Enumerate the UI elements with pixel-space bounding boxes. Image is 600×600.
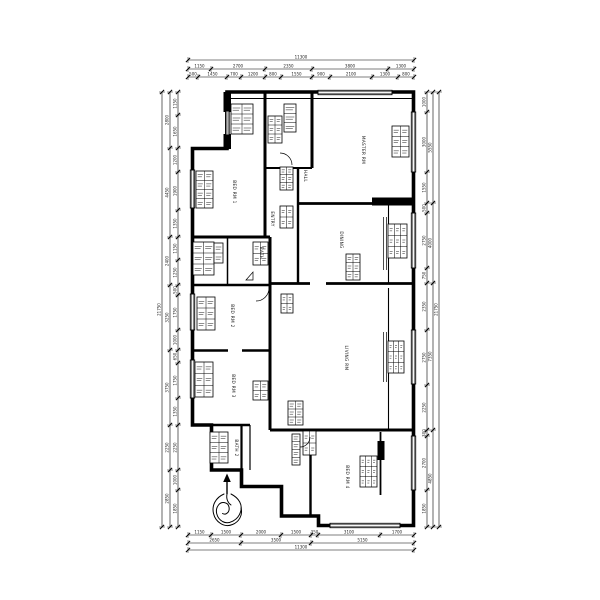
dim-label: 650	[173, 352, 178, 360]
door-swing	[280, 153, 292, 165]
fixture-block	[303, 431, 316, 455]
wall-column	[378, 441, 385, 460]
dim-label: 2700	[233, 64, 244, 69]
dim-tier-horizontal: 115015002000150035031001700	[186, 530, 416, 538]
window-frame	[411, 436, 415, 490]
dim-label: 2350	[422, 301, 427, 312]
dim-label: 1350	[173, 218, 178, 229]
entrance-scribble	[216, 494, 241, 523]
fixture-block	[280, 206, 293, 228]
dim-label: 2850	[165, 493, 170, 504]
fixture-outline	[284, 104, 296, 132]
wall-column	[372, 198, 414, 206]
window-symbol	[411, 112, 415, 172]
dim-label: 300	[422, 429, 427, 437]
fixture-block	[214, 243, 223, 263]
dim-label: 4450	[165, 187, 170, 198]
fixture-outline	[360, 456, 377, 487]
dim-label: 800	[402, 72, 410, 77]
fixture-block	[360, 456, 377, 487]
dim-label: 2800	[165, 114, 170, 125]
room-label: BED RM 1	[232, 180, 237, 203]
door-swing	[256, 288, 269, 301]
dim-label: 1750	[173, 307, 178, 318]
room-label: BATH	[259, 247, 264, 260]
window-symbol	[226, 111, 230, 135]
dim-label: 500	[173, 286, 178, 294]
dim-label: 11300	[295, 545, 308, 550]
floorplan-page: 1130011502700235038001300500145070012008…	[0, 0, 600, 600]
window-symbol	[190, 360, 194, 398]
fixture-block	[253, 381, 268, 400]
room-label: DINING	[339, 231, 344, 248]
dim-label: 750	[422, 271, 427, 279]
dim-tier-vertical: 1150165012001900135011501250500175010006…	[173, 90, 181, 529]
dim-label: 1750	[173, 375, 178, 386]
window-frame	[318, 90, 392, 94]
dim-label: 2650	[209, 538, 220, 543]
dim-label: 1350	[173, 406, 178, 417]
dim-label: 2250	[422, 402, 427, 413]
window-frame	[330, 523, 400, 527]
dim-label: 1900	[173, 185, 178, 196]
dim-label: 3500	[271, 538, 282, 543]
fixture-block	[268, 116, 282, 143]
window-symbol	[318, 90, 392, 94]
dim-label: 1150	[194, 64, 205, 69]
window-frame	[411, 213, 415, 268]
dim-label: 21750	[157, 303, 162, 316]
fixture-block	[197, 297, 215, 330]
fixture-block	[292, 434, 300, 465]
window-symbol	[411, 213, 415, 268]
window-frame	[190, 360, 194, 398]
dim-label: 1150	[194, 530, 205, 535]
window-frame	[190, 170, 194, 208]
dim-label: 1250	[173, 267, 178, 278]
dim-label: 1850	[422, 503, 427, 514]
fixture-block	[195, 362, 213, 397]
window-frame	[190, 294, 194, 330]
dim-label: 3000	[422, 136, 427, 147]
dim-label: 2250	[165, 442, 170, 453]
dim-label: 1000	[422, 96, 427, 107]
wall	[384, 332, 387, 382]
door-swing	[246, 272, 253, 280]
dim-label: 1550	[291, 72, 302, 77]
dim-label: 2000	[256, 530, 267, 535]
dim-label: 21750	[434, 303, 439, 316]
dim-label: 1550	[422, 182, 427, 193]
dim-tier-horizontal: 11300	[186, 55, 416, 63]
dim-label: 2400	[165, 255, 170, 266]
dim-label: 1300	[396, 64, 407, 69]
dim-label: 1300	[380, 72, 391, 77]
dim-label: 1200	[248, 72, 259, 77]
fixture-block	[284, 104, 296, 132]
dim-label: 900	[317, 72, 325, 77]
wall-column	[224, 92, 232, 112]
dim-label: 1700	[392, 530, 403, 535]
dim-label: 1150	[173, 98, 178, 109]
dim-label: 2100	[346, 72, 357, 77]
window-frame	[411, 112, 415, 172]
fixture-block	[210, 432, 228, 463]
dim-label: 500	[189, 72, 197, 77]
dim-label: 4000	[428, 237, 433, 248]
room-label: BED RM 4	[345, 465, 350, 488]
dim-label: 1150	[173, 243, 178, 254]
fixture-block	[288, 401, 303, 425]
entrance-arrow-head	[223, 474, 231, 483]
room-label: ENTRY	[270, 211, 275, 226]
window-frame	[226, 111, 230, 135]
dim-label: 3750	[165, 382, 170, 393]
dim-tier-horizontal: 11300	[186, 545, 416, 553]
window-frame	[411, 330, 415, 384]
dim-label: 1000	[173, 474, 178, 485]
dim-label: 2750	[422, 235, 427, 246]
dim-label: 1200	[173, 154, 178, 165]
dim-label: 1850	[173, 503, 178, 514]
entrance-arrow-icon	[213, 474, 241, 526]
fixture-block	[196, 171, 213, 208]
fixture-block	[231, 104, 253, 134]
dim-label: 2250	[173, 442, 178, 453]
wall	[384, 217, 387, 270]
dim-label: 1500	[221, 530, 232, 535]
dim-label: 2350	[283, 64, 294, 69]
dim-tier-vertical: 21750	[157, 90, 165, 529]
dim-label: 700	[230, 72, 238, 77]
room-label: MASTER RM	[361, 136, 366, 164]
dim-label: 7350	[428, 351, 433, 362]
room-label: BATH 2	[234, 439, 239, 456]
floorplan-svg: 1130011502700235038001300500145070012008…	[0, 0, 600, 600]
dim-label: 1500	[291, 530, 302, 535]
fixture-block	[346, 254, 360, 280]
room-label: BED RM 2	[230, 304, 235, 327]
dim-label: 3800	[345, 64, 356, 69]
wall-column	[224, 134, 232, 149]
fixture-block	[388, 341, 404, 373]
dim-label: 2700	[422, 457, 427, 468]
fixture-outline	[388, 341, 404, 373]
fixture-outline	[388, 224, 407, 258]
window-symbol	[411, 330, 415, 384]
fixture-block	[392, 126, 409, 157]
dim-tier-horizontal: 50014507001200800155090021001300800	[186, 72, 416, 80]
room-label: LIVING RM	[344, 345, 349, 370]
dim-label: 1000	[173, 334, 178, 345]
dim-label: 500	[422, 204, 427, 212]
window-symbol	[190, 170, 194, 208]
dim-label: 800	[269, 72, 277, 77]
fixture-block	[281, 294, 293, 313]
dim-label: 3100	[344, 530, 355, 535]
window-symbol	[330, 523, 400, 527]
dim-label: 11300	[295, 55, 308, 60]
dim-label: 5550	[428, 142, 433, 153]
room-label: BED RM 3	[231, 374, 236, 397]
window-symbol	[411, 436, 415, 490]
window-symbol	[190, 294, 194, 330]
dim-tier-vertical: 1000300015505002750750235027502250300270…	[422, 90, 430, 529]
fixture-block	[193, 242, 214, 275]
dim-label: 5150	[357, 538, 368, 543]
room-label: HALL	[303, 170, 308, 182]
dim-tier-vertical: 21750	[434, 90, 442, 529]
fixture-block	[280, 167, 293, 190]
dim-label: 4850	[428, 473, 433, 484]
dim-label: 1450	[207, 72, 218, 77]
fixture-block	[388, 224, 407, 258]
dim-label: 2750	[422, 352, 427, 363]
dim-label: 350	[311, 530, 319, 535]
dim-label: 1650	[173, 126, 178, 137]
dim-label: 3250	[165, 312, 170, 323]
